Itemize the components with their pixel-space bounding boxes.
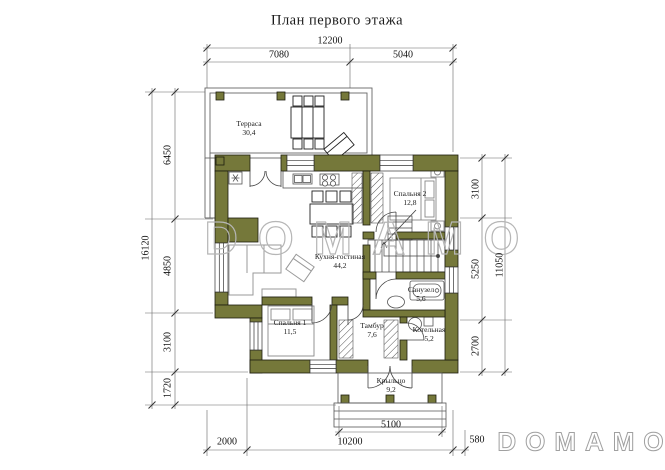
dim-bottom-mid: 10200 (338, 437, 363, 448)
kitchen-counter (229, 171, 363, 188)
dim-right-seg3: 2700 (471, 336, 482, 356)
room-label-porch: Крыльцо9,2 (377, 376, 406, 394)
dim-right-seg1: 3100 (471, 179, 482, 199)
room-label-vestibule: Тамбур7,6 (360, 321, 384, 339)
dim-bottom-right: 580 (470, 435, 485, 446)
dim-porch-width: 5100 (381, 420, 401, 431)
dim-right-seg2: 5250 (471, 259, 482, 279)
floor-plan-page: План первого этажа DOMAMO DOMAMO Терраса… (0, 0, 665, 470)
dim-left-total: 16120 (141, 236, 152, 261)
dim-left-seg2: 4850 (163, 256, 174, 276)
dim-left-seg1: 6450 (163, 145, 174, 165)
page-title: План первого этажа (271, 13, 403, 30)
room-label-boiler: Котельная5,2 (413, 325, 446, 343)
dim-bottom-left: 2000 (217, 437, 237, 448)
room-label-bedroom1: Спальня 111,5 (274, 318, 307, 336)
watermark-center: DOMAMO (205, 211, 540, 265)
room-label-bathroom: Санузел5,6 (408, 285, 434, 303)
dim-right-total: 11050 (495, 253, 506, 278)
dim-top-total: 12200 (318, 36, 343, 47)
room-label-terrace: Терраса30,4 (236, 119, 261, 137)
dim-left-seg3: 3100 (163, 332, 174, 352)
room-label-living: Кухня-гостиная44,2 (315, 252, 365, 270)
dim-top-right: 5040 (393, 50, 413, 61)
watermark-corner: DOMAMO (497, 427, 665, 458)
dim-top-left: 7080 (269, 50, 289, 61)
dim-left-seg4: 1720 (163, 378, 174, 398)
room-label-bedroom2: Спальня 212,8 (394, 189, 427, 207)
